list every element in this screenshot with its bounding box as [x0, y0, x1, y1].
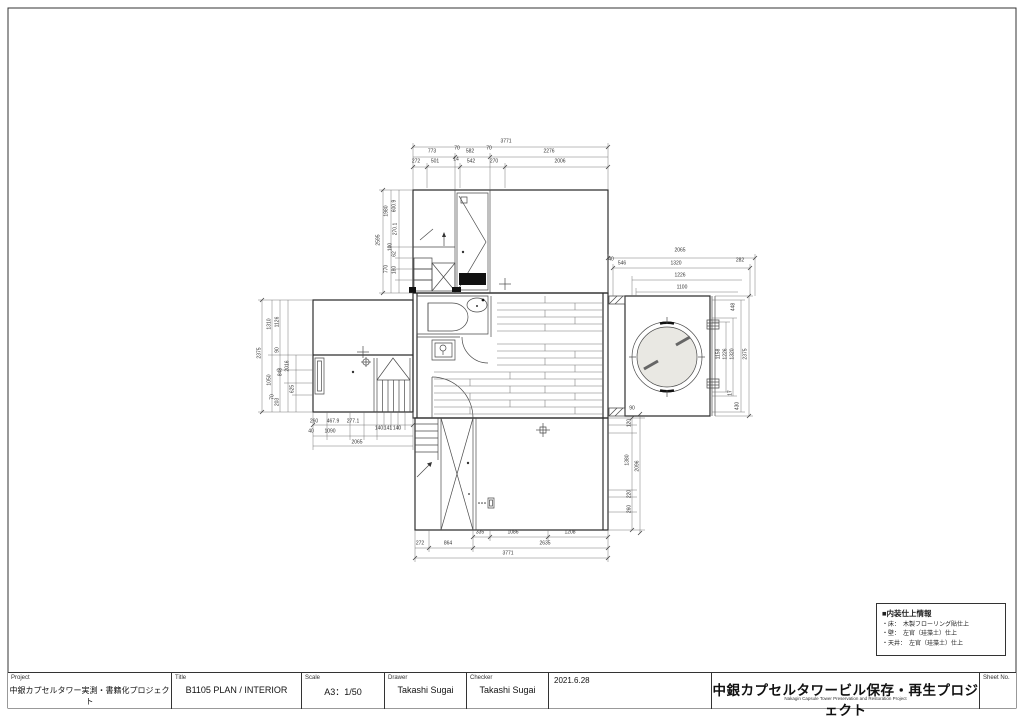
dimension-label: 270 — [490, 160, 498, 165]
title-block-sheet-cell: Sheet No. — [980, 673, 1016, 709]
title-block: Project 中銀カプセルタワー実測・書籍化プロジェクト Title B110… — [8, 672, 1016, 708]
dimension-label: 120 — [628, 419, 633, 427]
checker-value: Takashi Sugai — [467, 685, 548, 695]
dimension-label: 141 — [384, 427, 392, 432]
dimension-label: 1980 — [385, 205, 390, 216]
dimension-label: 1158 — [717, 349, 722, 360]
dimension-label: 2595 — [377, 234, 382, 245]
dimension-label: 770 — [385, 265, 390, 273]
dimension-label: 2375 — [744, 348, 749, 359]
dimension-label: 1226 — [674, 274, 685, 279]
dimension-label: 260 — [310, 420, 318, 425]
dimension-label: 864 — [444, 542, 452, 547]
title-block-title-cell: Title B1105 PLAN / INTERIOR — [172, 673, 302, 709]
dimension-label: 2276 — [543, 150, 554, 155]
org-subtitle: Nakagin Capsule Tower Preservation and R… — [712, 696, 979, 701]
dimension-label: 90 — [276, 347, 281, 353]
dimension-label: 467.9 — [327, 420, 340, 425]
dimension-label: 270.1 — [394, 223, 399, 236]
dimension-label: 1100 — [677, 286, 688, 291]
dimension-label: 282 — [736, 259, 744, 264]
dimension-label: 2006 — [554, 160, 565, 165]
dimension-label: 335 — [476, 531, 484, 536]
dimension-label: 1320 — [670, 262, 681, 267]
dimension-label: 2635 — [539, 542, 550, 547]
legend-title: ■内装仕上情報 — [882, 608, 1000, 619]
legend-item-ceiling: ・天井： 左官（珪藻土）仕上 — [882, 640, 1000, 649]
sheet-label: Sheet No. — [983, 675, 1010, 681]
checker-label: Checker — [470, 675, 492, 681]
date-value: 2021.6.28 — [554, 676, 590, 685]
dimension-label: 2375 — [258, 347, 263, 358]
dimension-label: 625 — [291, 385, 296, 393]
legend-item-floor: ・床： 木製フローリング貼仕上 — [882, 621, 1000, 630]
dimension-label: 70 — [486, 147, 492, 152]
title-block-scale-cell: Scale A3：1/50 — [302, 673, 385, 709]
title-value: B1105 PLAN / INTERIOR — [172, 685, 301, 695]
dimension-label: 272 — [416, 542, 424, 547]
dimension-label: 40 — [308, 430, 314, 435]
dimension-label: 1226 — [724, 348, 729, 359]
dimension-label: 546 — [618, 262, 626, 267]
scale-label: Scale — [305, 675, 320, 681]
dimension-label: 220 — [628, 490, 633, 498]
dimension-label: 1208 — [564, 531, 575, 536]
dimension-label: 501 — [431, 160, 439, 165]
dimension-label: 140 — [375, 427, 383, 432]
dimension-label: 70 — [454, 147, 460, 152]
dimension-label: 542 — [467, 160, 475, 165]
dimension-label: 1380 — [626, 454, 631, 465]
scale-value: A3：1/50 — [302, 685, 384, 698]
title-label: Title — [175, 675, 186, 681]
dimension-label: 448 — [732, 303, 737, 311]
dimension-label: 2096 — [636, 460, 641, 471]
dimension-label: 140 — [393, 427, 401, 432]
dimension-label: 848 — [279, 368, 284, 376]
dimension-label: 430 — [736, 402, 741, 410]
title-block-date-cell: 2021.6.28 — [549, 673, 712, 709]
project-label: Project — [11, 675, 30, 681]
dimension-label: 1050 — [268, 374, 273, 385]
dimension-label: 582 — [466, 150, 474, 155]
dimension-label: 40 — [608, 258, 614, 263]
title-block-checker-cell: Checker Takashi Sugai — [467, 673, 549, 709]
dimension-label: 203 — [276, 398, 281, 406]
drawer-value: Takashi Sugai — [385, 685, 466, 695]
dimension-label: 773 — [428, 150, 436, 155]
dimension-label: 3771 — [502, 552, 513, 557]
legend-item-wall: ・壁： 左官（珪藻土）仕上 — [882, 630, 1000, 639]
dimension-label: 2016 — [286, 360, 291, 371]
title-block-org-cell: 中銀カプセルタワービル保存・再生プロジェクト Nakagin Capsule T… — [712, 673, 980, 709]
dimension-label: 260 — [628, 505, 633, 513]
dimension-label: 1126 — [276, 317, 281, 328]
title-block-project-cell: Project 中銀カプセルタワー実測・書籍化プロジェクト — [8, 673, 172, 709]
dimension-label: 2065 — [674, 249, 685, 254]
interior-finish-legend: ■内装仕上情報 ・床： 木製フローリング貼仕上 ・壁： 左官（珪藻土）仕上 ・天… — [876, 603, 1006, 656]
drawer-label: Drawer — [388, 675, 407, 681]
dimension-labels-layer: 3771773705827022762725011454227020063351… — [0, 0, 1024, 716]
dimension-label: 1310 — [268, 318, 273, 329]
dimension-label: 17 — [729, 390, 734, 396]
project-value: 中銀カプセルタワー実測・書籍化プロジェクト — [8, 685, 171, 707]
dimension-label: 272 — [412, 160, 420, 165]
dimension-label: 1086 — [507, 531, 518, 536]
dimension-label: 1090 — [324, 430, 335, 435]
dimension-label: 277.1 — [347, 420, 360, 425]
dimension-label: 14 — [453, 158, 459, 163]
dimension-label: 2065 — [351, 441, 362, 446]
dimension-label: 1320 — [731, 348, 736, 359]
dimension-label: 3771 — [500, 140, 511, 145]
dimension-label: 62 — [393, 251, 398, 257]
dimension-label: 180 — [393, 266, 398, 274]
title-block-drawer-cell: Drawer Takashi Sugai — [385, 673, 467, 709]
dimension-label: 90 — [629, 407, 635, 412]
dimension-label: 600.9 — [393, 200, 398, 213]
